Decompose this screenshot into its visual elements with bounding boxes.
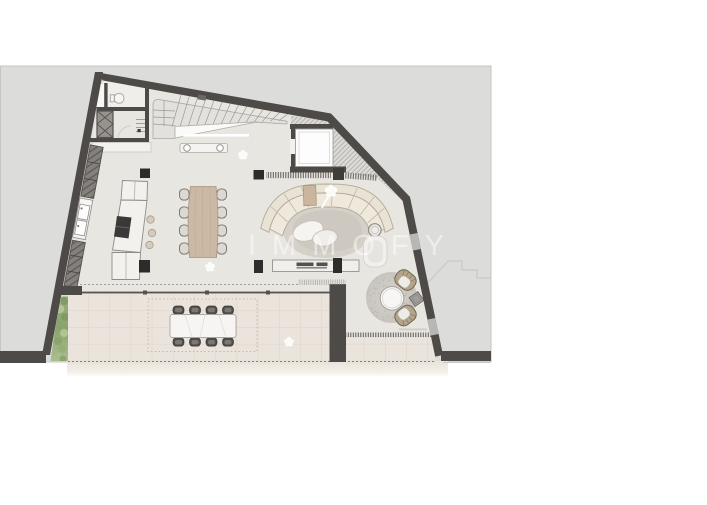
- svg-text:IMMOFY: IMMOFY: [248, 230, 460, 262]
